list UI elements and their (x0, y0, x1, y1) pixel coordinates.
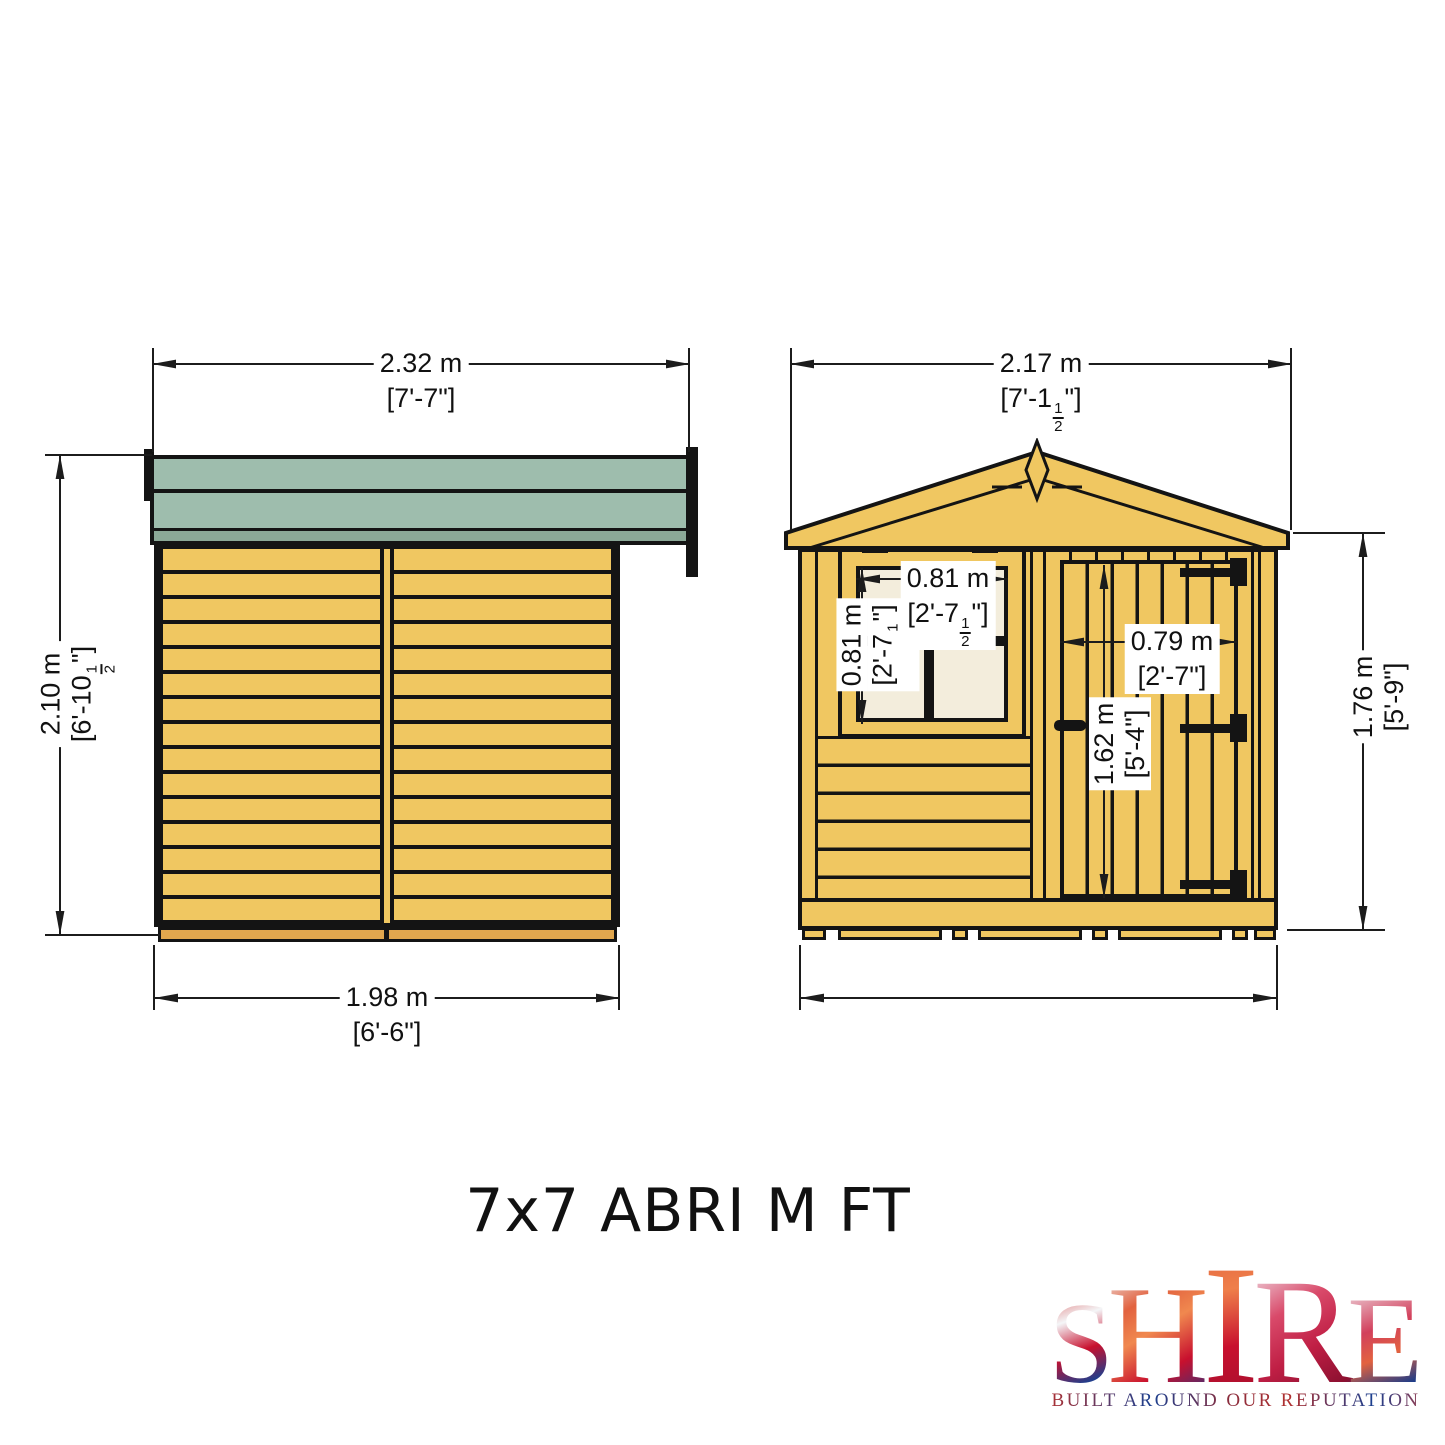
front-lower-slats (818, 736, 1030, 898)
eaves-ext-bottom (1287, 929, 1385, 931)
side-left-ext-bottom (45, 934, 160, 936)
front-top-ext-right (1290, 348, 1292, 530)
arrow-right-icon (1268, 359, 1292, 369)
front-bottom-ext-left (799, 945, 801, 1010)
dim-metric: 0.81 m (901, 561, 996, 596)
front-top-ext-left (790, 348, 792, 530)
dim-imperial: [7'-7"] (374, 381, 469, 416)
arrow-right-icon (596, 993, 620, 1003)
arrow-up-icon (55, 455, 65, 479)
front-right-corner-line (1258, 552, 1261, 898)
eaves-ext-top (1293, 532, 1385, 534)
front-gable-roof (770, 438, 1310, 553)
logo-letter-r: R (1253, 1257, 1353, 1407)
dim-imperial: [5'-9"] (1379, 651, 1410, 744)
side-left-ext-top (45, 454, 152, 456)
side-bottom-ext-right (618, 945, 620, 1010)
dim-imperial: [5'-4"] (1120, 698, 1151, 791)
shire-logo-tagline: BUILT AROUND OUR REPUTATION (1046, 1390, 1426, 1412)
logo-letter-e: E (1347, 1279, 1423, 1403)
dim-metric: 0.79 m (1125, 624, 1220, 659)
shed-dimension-drawing: 2.32 m [7'-7"] 2.10 m [6'-1012"] 1.98 m … (0, 0, 1445, 1445)
window-width-label: 0.81 m [2'-712"] (901, 561, 996, 650)
logo-letter-s: S (1049, 1286, 1114, 1402)
dim-metric: 1.98 m (340, 980, 435, 1015)
arrow-down-icon (55, 911, 65, 935)
arrow-left-icon (800, 993, 824, 1003)
dim-metric: 2.32 m (374, 346, 469, 381)
shire-logo: SHIRE BUILT AROUND OUR REPUTATION (1046, 1240, 1426, 1422)
dim-imperial: [2'-7"] (1125, 659, 1220, 694)
side-roof-left-cap (144, 449, 154, 501)
skid-foot (1092, 928, 1108, 940)
arrow-left-icon (152, 359, 176, 369)
skid-foot (838, 928, 942, 940)
skid-foot (1118, 928, 1222, 940)
door-hinge-strap-middle (1180, 724, 1234, 733)
side-roof-edge-strip (154, 528, 691, 541)
skid-foot (952, 928, 968, 940)
dim-metric: 1.62 m (1089, 698, 1120, 791)
door-hinge-knuckle-top (1230, 558, 1247, 586)
skid-foot (1254, 928, 1276, 940)
front-bottom-dim-line (800, 997, 1277, 999)
side-base-width-label: 1.98 m [6'-6"] (340, 980, 435, 1050)
eaves-height-label: 1.76 m [5'-9"] (1348, 651, 1410, 744)
shire-logo-word: SHIRE (1046, 1240, 1426, 1390)
arrow-right-icon (1253, 993, 1277, 1003)
skid-foot (1232, 928, 1248, 940)
side-roof-right-cap (686, 447, 698, 577)
side-bottom-ext-left (153, 945, 155, 1010)
front-roof-width-label: 2.17 m [7'-112"] (994, 346, 1089, 435)
door-handle (1054, 720, 1086, 731)
dim-metric: 1.76 m (1348, 651, 1379, 744)
side-wall-center-board (380, 549, 394, 923)
door-hinge-strap-bottom (1180, 880, 1234, 889)
door-hinge-knuckle-bottom (1230, 870, 1247, 898)
dim-imperial: [6'-1012"] (66, 641, 118, 747)
logo-letter-h: H (1107, 1266, 1208, 1406)
door-hinge-strap-top (1180, 568, 1234, 577)
door-width-label: 0.79 m [2'-7"] (1125, 624, 1220, 694)
arrow-right-icon (666, 359, 690, 369)
dim-imperial: [2'-712"] (901, 596, 996, 650)
side-height-label: 2.10 m [6'-1012"] (35, 641, 118, 747)
dim-metric: 2.10 m (35, 641, 66, 747)
door-height-label: 1.62 m [5'-4"] (1089, 698, 1151, 791)
drawing-title: 7x7 ABRI M FT (465, 1176, 911, 1246)
arrow-left-icon (790, 359, 814, 369)
side-roof (150, 455, 695, 545)
arrow-down-icon (1358, 906, 1368, 930)
arrow-up-icon (1358, 533, 1368, 557)
dim-metric: 2.17 m (994, 346, 1089, 381)
dim-imperial: [6'-6"] (340, 1015, 435, 1050)
front-center-board (1030, 552, 1046, 898)
dim-imperial: [7'-112"] (994, 381, 1089, 435)
side-floor-center-gap (384, 927, 389, 942)
skid-foot (802, 928, 826, 940)
side-roof-width-label: 2.32 m [7'-7"] (374, 346, 469, 416)
side-roof-band-line (154, 489, 691, 493)
arrow-left-icon (154, 993, 178, 1003)
door-hinge-knuckle-middle (1230, 714, 1247, 742)
front-floor (798, 898, 1278, 930)
skid-foot (978, 928, 1082, 940)
dim-metric: 0.81 m (836, 599, 867, 692)
logo-letter-i: I (1203, 1240, 1260, 1410)
front-bottom-ext-right (1276, 945, 1278, 1010)
